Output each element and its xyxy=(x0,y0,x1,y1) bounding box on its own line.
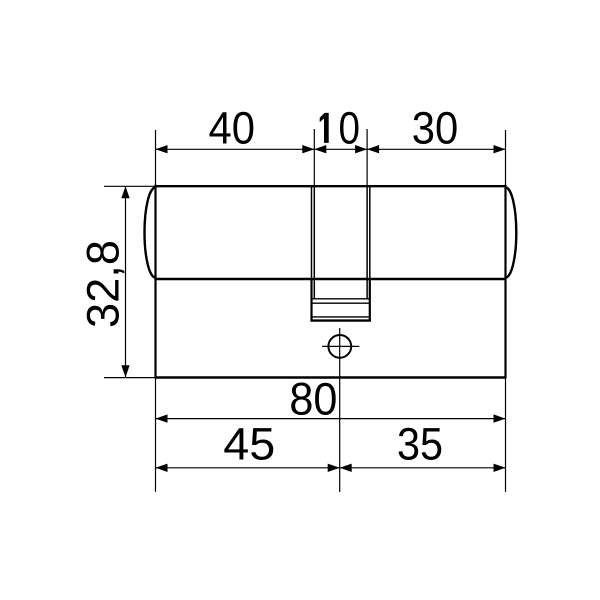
svg-text:30: 30 xyxy=(412,103,459,154)
svg-text:32,8: 32,8 xyxy=(78,240,129,328)
svg-text:45: 45 xyxy=(223,419,275,470)
svg-text:35: 35 xyxy=(397,419,443,470)
svg-text:0: 0 xyxy=(338,103,360,154)
svg-text:80: 80 xyxy=(289,374,337,425)
svg-text:40: 40 xyxy=(209,103,256,154)
